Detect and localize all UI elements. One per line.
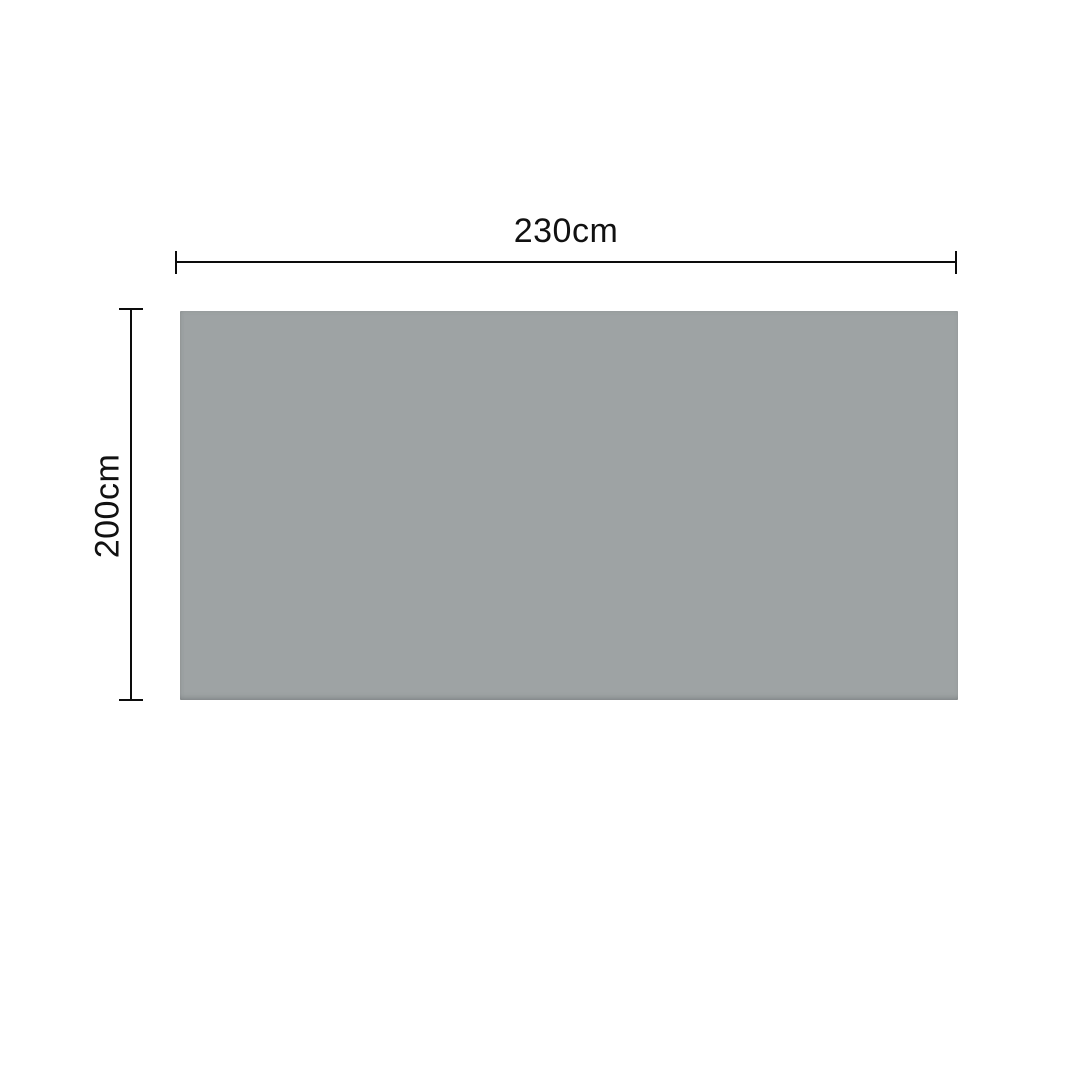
height-dimension-label: 200cm	[90, 453, 124, 558]
width-dimension-tick-left	[175, 251, 177, 274]
width-dimension-tick-right	[955, 251, 957, 274]
height-dimension-tick-top	[119, 308, 143, 310]
width-dimension-label: 230cm	[175, 214, 957, 248]
height-dimension-tick-bottom	[119, 699, 143, 701]
dimension-diagram: 230cm 200cm	[0, 0, 1080, 1080]
width-dimension-line	[175, 261, 957, 263]
height-dimension-label-wrap: 200cm	[88, 311, 126, 700]
product-rectangle	[180, 311, 958, 700]
height-dimension-line	[130, 308, 132, 701]
